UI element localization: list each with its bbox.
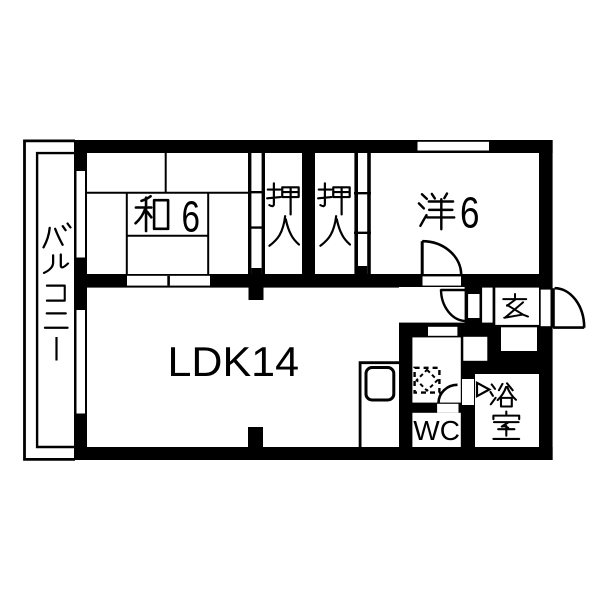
- svg-text:6: 6: [460, 188, 480, 237]
- svg-text:WC: WC: [413, 415, 460, 446]
- svg-text:6: 6: [182, 193, 201, 242]
- svg-text:LDK14: LDK14: [168, 338, 300, 385]
